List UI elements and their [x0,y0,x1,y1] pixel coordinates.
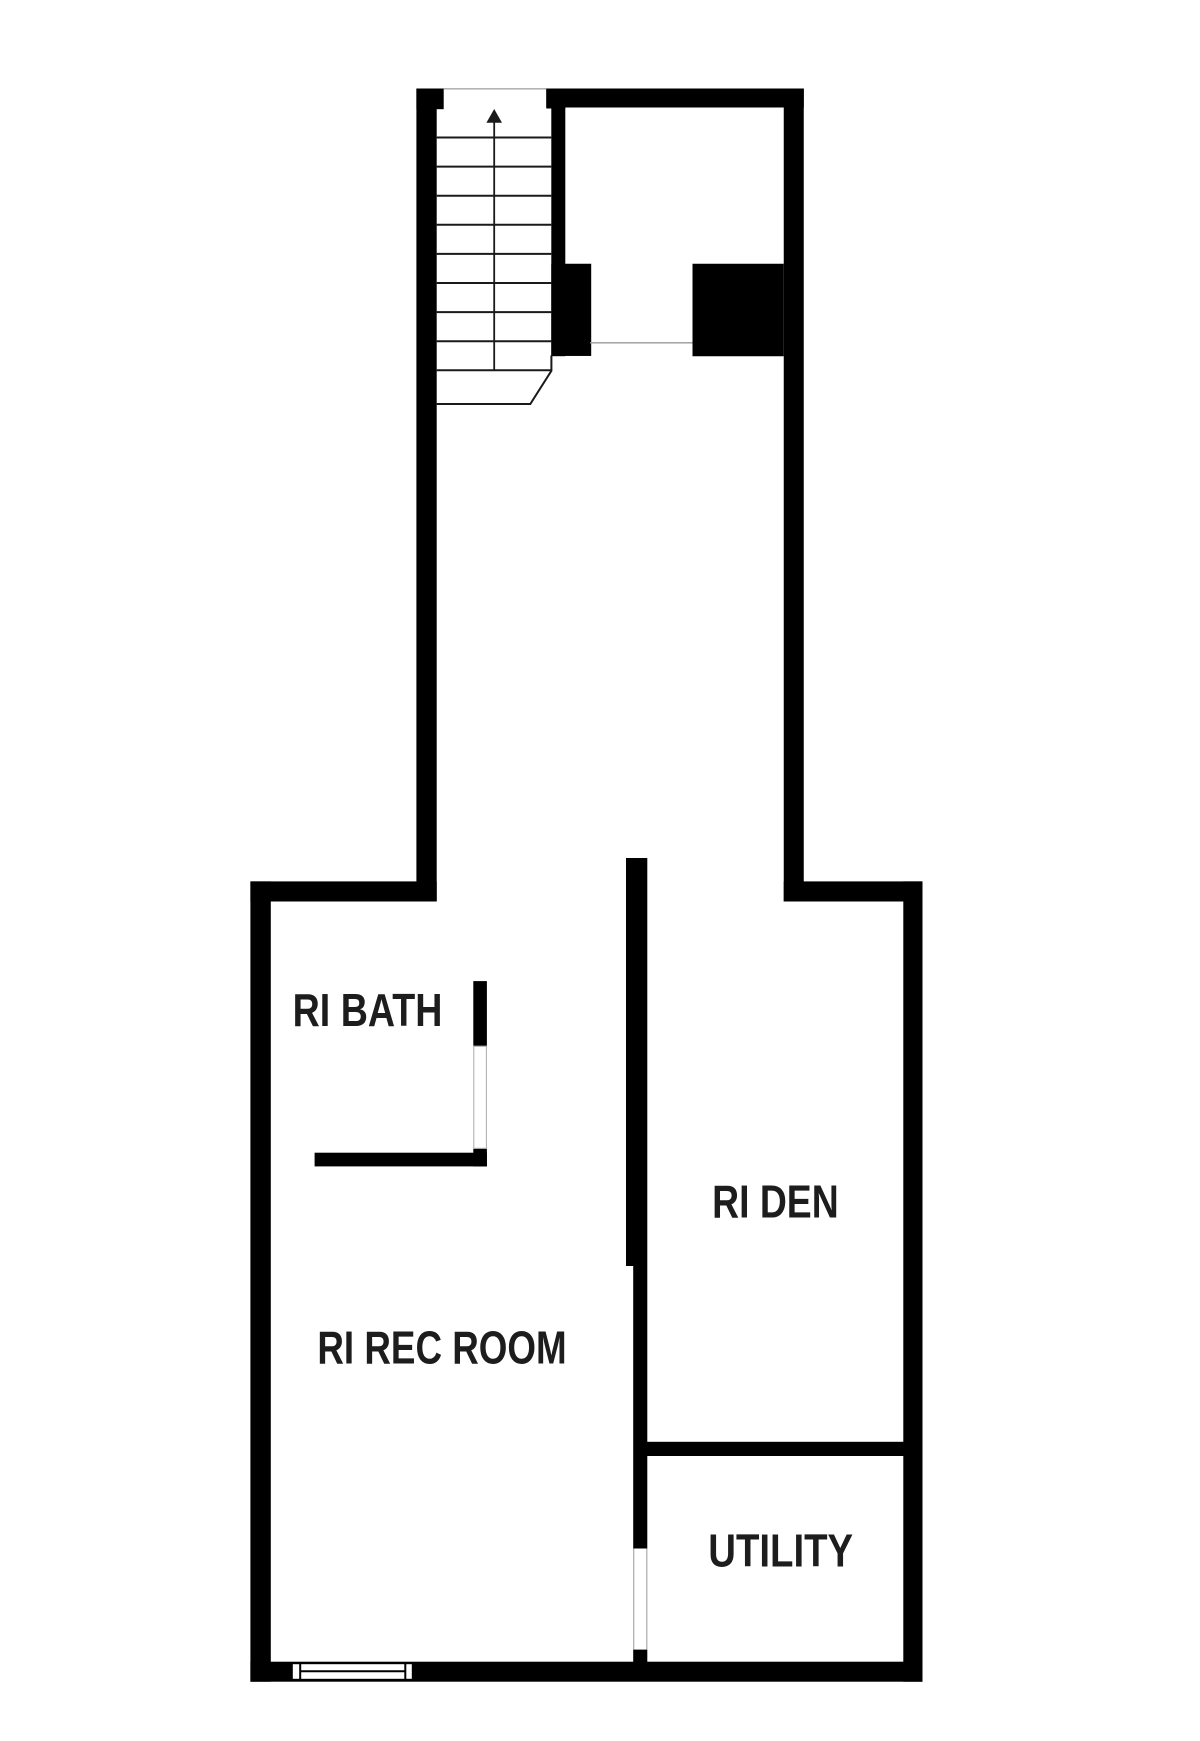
svg-text:RI BATH: RI BATH [293,984,443,1035]
svg-text:UTILITY: UTILITY [708,1525,853,1576]
svg-text:RI DEN: RI DEN [712,1176,839,1228]
svg-text:RI REC ROOM: RI REC ROOM [317,1322,566,1374]
